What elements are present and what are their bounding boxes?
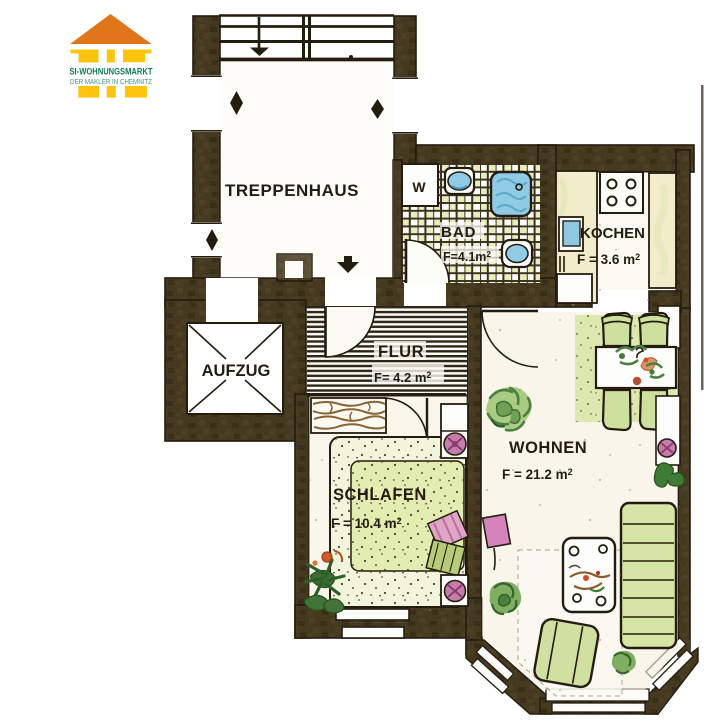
svg-text:F=4.1m2: F=4.1m2	[443, 250, 491, 264]
svg-text:SI-WOHNUNGSMARKT: SI-WOHNUNGSMARKT	[70, 67, 153, 78]
svg-text:WOHNEN: WOHNEN	[509, 439, 587, 457]
svg-text:F = 3.6 m2: F = 3.6 m2	[577, 252, 640, 267]
svg-text:KOCHEN: KOCHEN	[580, 225, 645, 242]
svg-text:BAD: BAD	[441, 224, 477, 241]
svg-text:SCHLAFEN: SCHLAFEN	[333, 486, 427, 504]
svg-text:W: W	[412, 179, 426, 195]
svg-text:DER MAKLER IN CHEMNITZ: DER MAKLER IN CHEMNITZ	[70, 77, 152, 86]
svg-text:F = 10.4 m2: F = 10.4 m2	[331, 516, 402, 531]
svg-text:AUFZUG: AUFZUG	[202, 362, 271, 380]
svg-text:TREPPENHAUS: TREPPENHAUS	[225, 181, 359, 200]
svg-text:F= 4.2 m2: F= 4.2 m2	[374, 370, 431, 385]
svg-text:FLUR: FLUR	[378, 343, 424, 361]
